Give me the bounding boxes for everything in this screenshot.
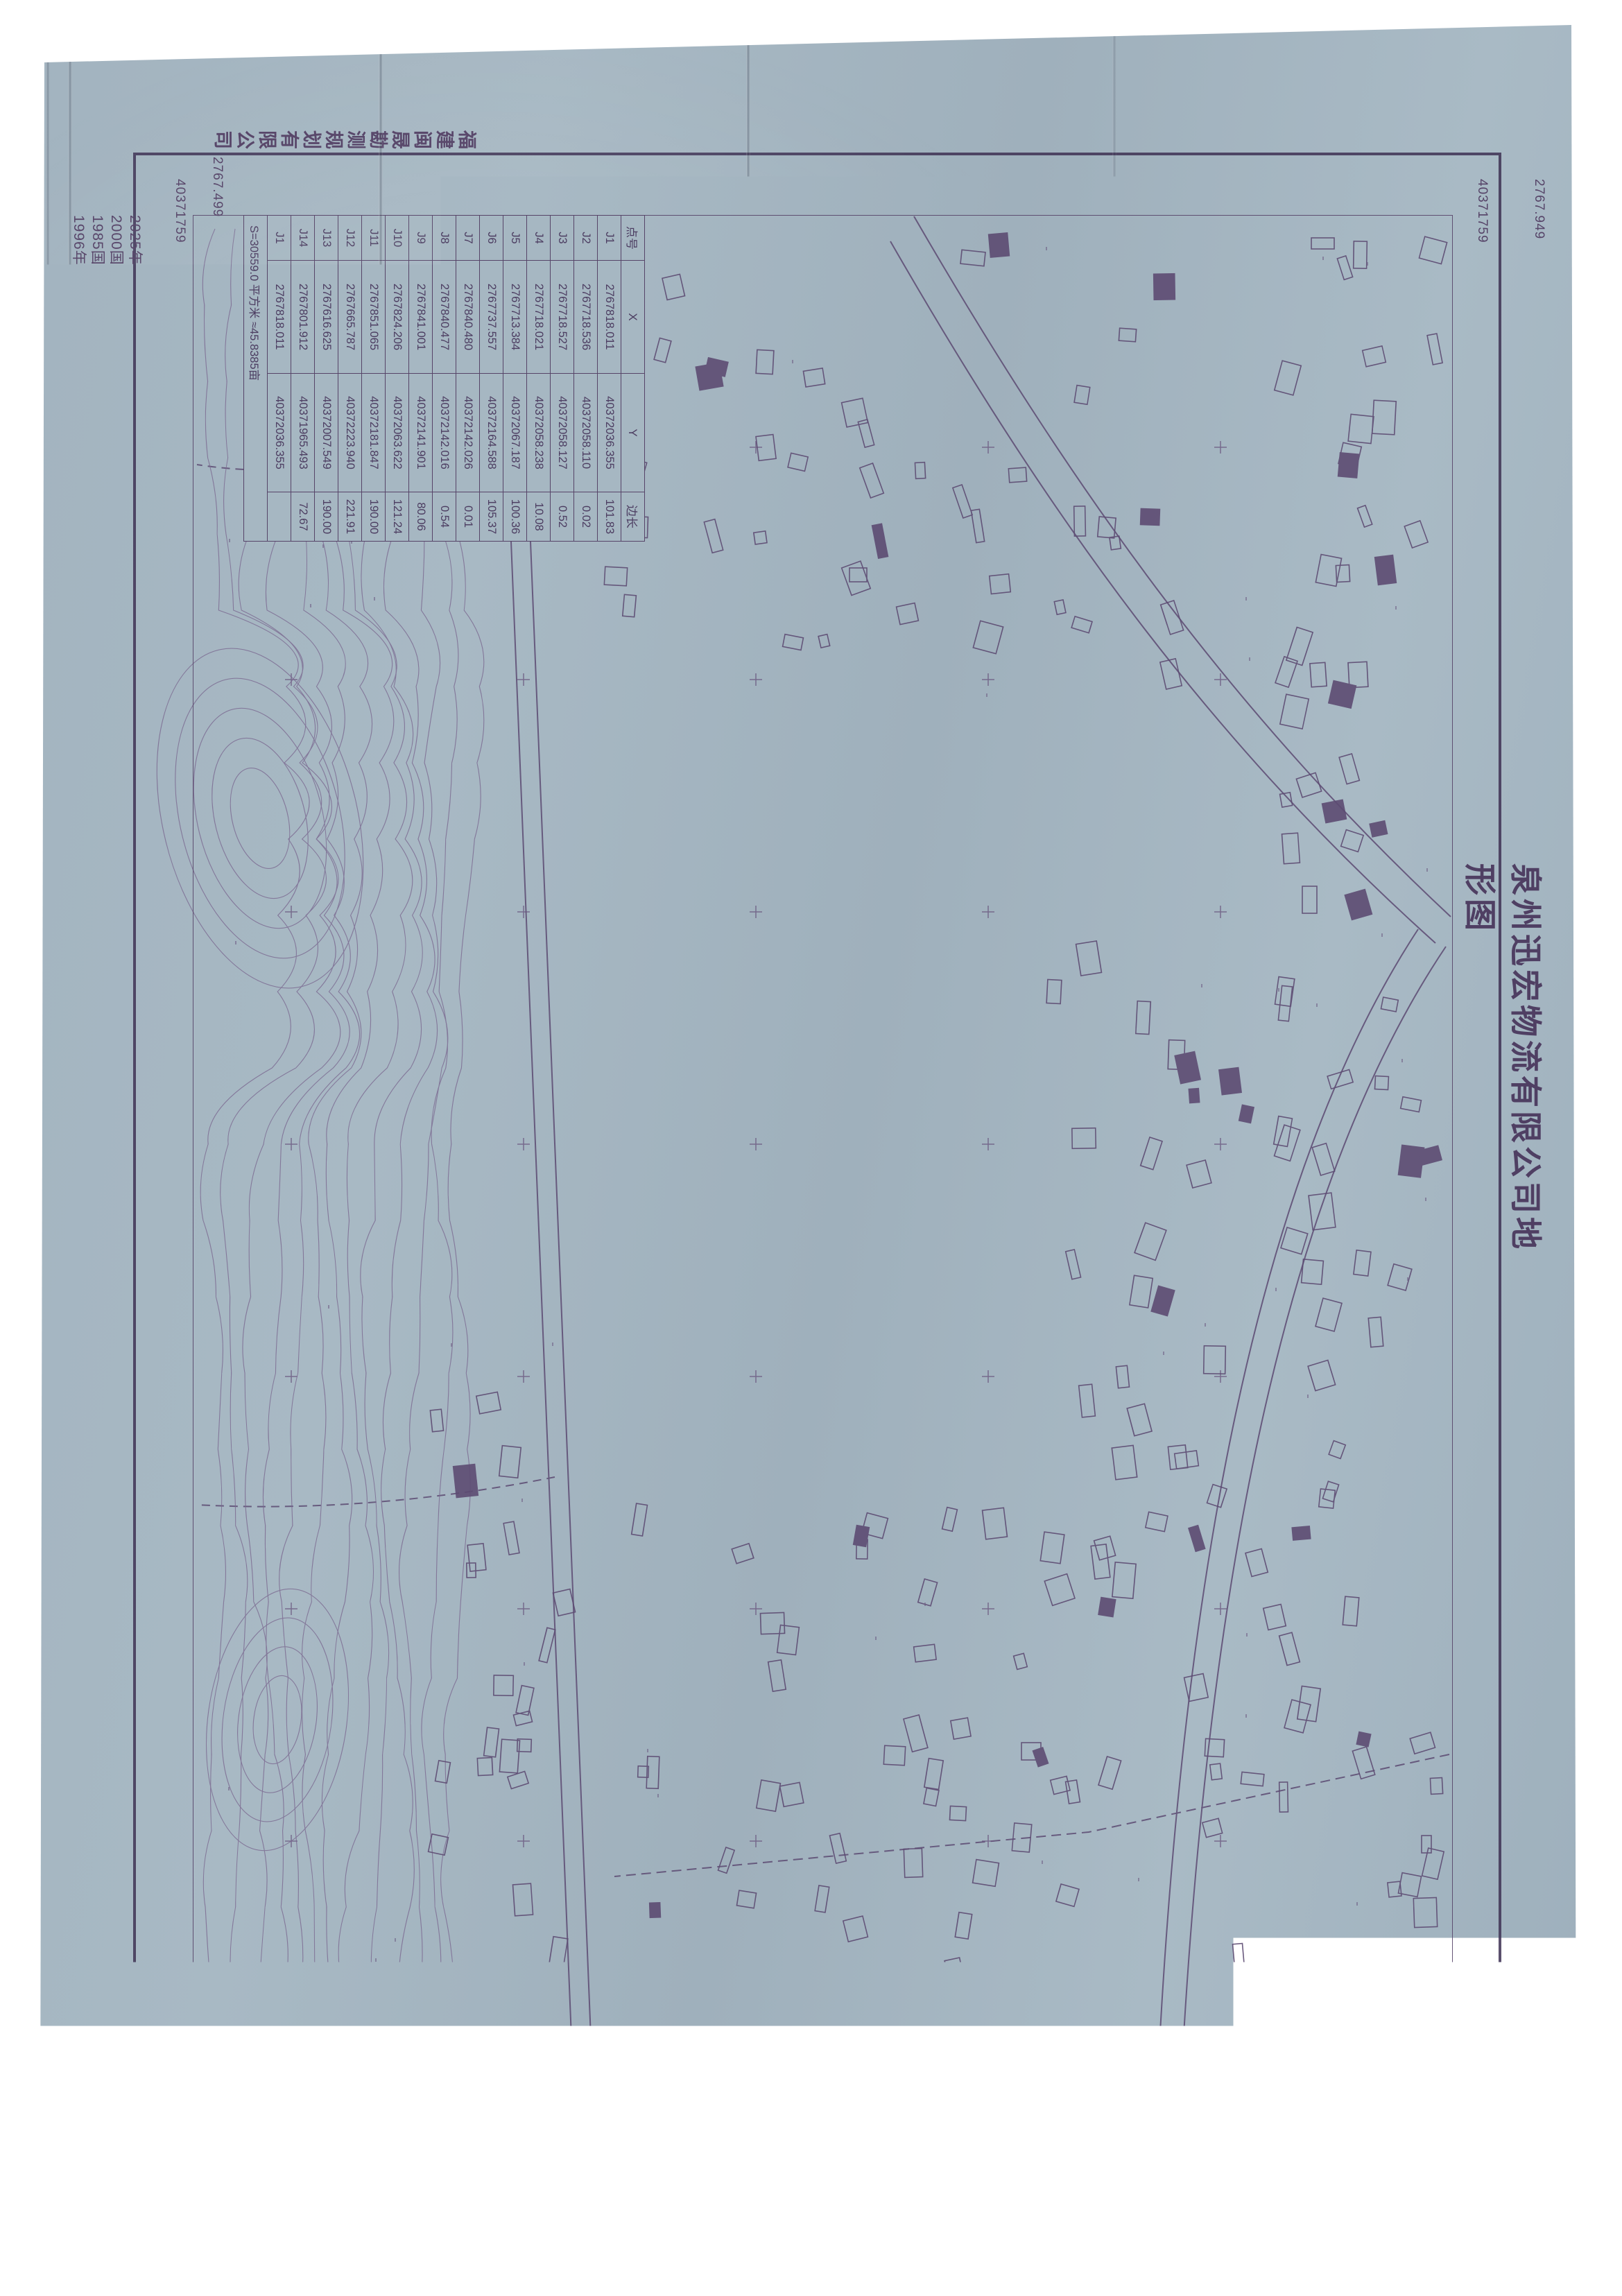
map-sheet-paper: 泉州迅宏物流有限公司地形图 福建闽晟勘测规划有限公司 2025年8月数字化制图，… [0, 0, 1622, 2295]
boundary-point-label: J4 [673, 900, 686, 913]
table-cell: 40372164.588 [480, 374, 503, 492]
table-cell: 40372067.187 [503, 374, 527, 492]
table-cell: 40372007.549 [315, 374, 338, 492]
table-row: J82767840.47740372142.0160.54 [433, 216, 456, 542]
topographic-map-rotated-content: 泉州迅宏物流有限公司地形图 福建闽晟勘测规划有限公司 2025年8月数字化制图，… [42, 21, 1574, 2153]
note-line: 2000国家大地坐标系，中央子午线120度。 [107, 215, 126, 506]
table-row: J112767851.06540372181.847190.00 [362, 216, 386, 542]
table-cell: J13 [315, 216, 338, 261]
table-row: J142767801.91240371965.49372.67 [291, 216, 315, 542]
table-cell: 72.67 [291, 492, 315, 542]
table-cell: J10 [386, 216, 409, 261]
boundary-point-label: J10 [954, 890, 967, 909]
table-header-cell: Y [621, 374, 645, 492]
table-cell: 190.00 [315, 492, 338, 542]
table-cell: 105.37 [480, 492, 503, 542]
fold-crease [746, 21, 750, 2153]
fold-crease [1112, 21, 1116, 2153]
table-cell: J5 [503, 216, 527, 261]
table-cell: J9 [409, 216, 433, 261]
table-cell: J6 [480, 216, 503, 261]
table-cell: 2767801.912 [291, 261, 315, 374]
fold-crease [68, 21, 72, 2153]
corner-coordinate-bottom-northing: 2767.499 [209, 157, 225, 217]
table-row: J32767718.52740372058.1270.52 [551, 216, 574, 542]
table-row: J12767818.01140372036.355 [268, 216, 291, 542]
fold-crease [46, 21, 50, 2153]
table-cell: J2 [574, 216, 598, 261]
table-cell: J12 [338, 216, 362, 261]
table-cell: J14 [291, 216, 315, 261]
table-cell: 0.54 [433, 492, 456, 542]
table-cell: 0.02 [574, 492, 598, 542]
corner-coordinate-top-northing: 2767.949 [1531, 179, 1546, 239]
table-cell: 121.24 [386, 492, 409, 542]
table-row: J92767841.00140372141.90180.06 [409, 216, 433, 542]
table-cell: 40372036.355 [268, 374, 291, 492]
table-cell: 10.08 [527, 492, 551, 542]
table-cell: 40372058.110 [574, 374, 598, 492]
map-scale: 1:1500 [39, 473, 60, 543]
table-cell: J1 [598, 216, 621, 261]
table-cell: 2767818.011 [598, 261, 621, 374]
table-row: J72767840.48040372142.0260.01 [456, 216, 480, 542]
table-cell: 80.06 [409, 492, 433, 542]
table-row: J42767718.02140372058.23810.08 [527, 216, 551, 542]
paper-wrinkle [366, 1664, 716, 1795]
table-row: J132767616.62540372007.549190.00 [315, 216, 338, 542]
table-row: J122767665.78740372223.940221.91 [338, 216, 362, 542]
table-header-cell: 边长 [621, 492, 645, 542]
boundary-coordinate-table: 点号XY边长J12767818.01140372036.355101.83J22… [243, 215, 645, 542]
table-cell: J1 [268, 216, 291, 261]
table-row: J22767718.53640372058.1100.02 [574, 216, 598, 542]
map-outer-border [133, 153, 1501, 2127]
table-cell: 40372181.847 [362, 374, 386, 492]
fold-crease [379, 21, 383, 2153]
stamp-star-icon [164, 619, 193, 650]
red-seal-stamp: 福建闽晟勘测规划有限公司 [42, 21, 1574, 2153]
scanned-document: 泉州迅宏物流有限公司地形图 福建闽晟勘测规划有限公司 2025年8月数字化制图，… [0, 0, 1622, 2295]
table-cell: 40372063.622 [386, 374, 409, 492]
table-cell: 40372142.016 [433, 374, 456, 492]
qr-code [1288, 2202, 1352, 2266]
table-cell: 40372223.940 [338, 374, 362, 492]
table-cell: 2767840.480 [456, 261, 480, 374]
boundary-point-label: J8 [990, 1074, 1003, 1087]
corner-coordinate-bottom-easting: 40371759 [172, 179, 187, 243]
table-header-cell: 点号 [621, 216, 645, 261]
table-cell: 2767718.536 [574, 261, 598, 374]
boundary-point-label: J11 [1015, 1206, 1028, 1225]
table-cell: 40372142.026 [456, 374, 480, 492]
paper-wrinkle [924, 372, 1198, 507]
table-cell: 2767824.206 [386, 261, 409, 374]
table-cell: 40371965.493 [291, 374, 315, 492]
boundary-point-label: J6 [729, 1164, 742, 1177]
camscanner-logo-text: CS [1372, 2215, 1406, 2242]
table-cell: 40372058.238 [527, 374, 551, 492]
boundary-point-label: J3 [686, 882, 699, 895]
boundary-point-label: J14 [901, 663, 914, 683]
road-number-label: (X308) [537, 358, 555, 400]
table-cell: 101.83 [598, 492, 621, 542]
table-row: J52767713.38440372067.187100.36 [503, 216, 527, 542]
table-cell: 100.36 [503, 492, 527, 542]
map-inner-frame [193, 215, 1453, 2075]
corner-coordinate-top-easting: 40371759 [1474, 179, 1490, 243]
table-header-row: 点号XY边长 [621, 216, 645, 542]
stamp-ring-text: 福建闽晟勘测规划有限公司 [143, 582, 223, 687]
explanation-box: 说明：红线系泉州迅宏物流有限公司规划报批用地界线。 [127, 546, 254, 684]
svg-text:福建闽晟勘测规划有限公司: 福建闽晟勘测规划有限公司 [143, 582, 223, 687]
boundary-point-label: J5 [671, 938, 684, 951]
surveyor-company-name: 福建闽晟勘测规划有限公司 [211, 125, 477, 152]
table-cell: 0.01 [456, 492, 480, 542]
fold-crease [40, 391, 1574, 395]
table-cell: J11 [362, 216, 386, 261]
table-cell: 2767737.557 [480, 261, 503, 374]
paper-wrinkle [1179, 2028, 1442, 2080]
table-cell: 2767851.065 [362, 261, 386, 374]
table-cell: J7 [456, 216, 480, 261]
table-row: J62767737.55740372164.588105.37 [480, 216, 503, 542]
red-boundary-layer: J1J2J3J4J5J6J7J8J9J10J11J12J13J14 [42, 21, 1574, 2153]
table-cell: J3 [551, 216, 574, 261]
table-cell: 40372036.355 [598, 374, 621, 492]
map-title: 泉州迅宏物流有限公司地形图 [1459, 863, 1551, 1279]
table-cell: 2767841.001 [409, 261, 433, 374]
table-cell: 2767713.384 [503, 261, 527, 374]
area-cell: S=30559.0 平方米 ≈45.8385亩 [244, 216, 268, 542]
map-notes: 2025年8月数字化制图， 2000国家大地坐标系，中央子午线120度。 198… [69, 215, 144, 506]
table-area-row: S=30559.0 平方米 ≈45.8385亩 [244, 216, 268, 542]
boundary-point-label: J2 [686, 917, 699, 930]
boundary-point-label: J1 [940, 865, 953, 878]
explanation-text: 说明：红线系泉州迅宏物流有限公司规划报批用地界线。 [173, 554, 245, 671]
table-cell: 2767840.477 [433, 261, 456, 374]
table-cell: 2767818.011 [268, 261, 291, 374]
fold-crease [40, 1913, 1574, 1917]
camscanner-logo-icon: CS [1366, 2205, 1412, 2251]
boundary-point-label: J12 [564, 1304, 577, 1323]
table-cell: 2767665.787 [338, 261, 362, 374]
fold-crease [40, 905, 1574, 909]
table-cell: 2767718.021 [527, 261, 551, 374]
table-cell [268, 492, 291, 542]
boundary-point-label: J13 [445, 782, 458, 801]
table-cell: 2767718.527 [551, 261, 574, 374]
note-line: 2025年8月数字化制图， [126, 215, 144, 506]
camscanner-tagline: 3亿人都在用的扫描App [1424, 2249, 1622, 2296]
table-row: J102767824.20640372063.622121.24 [386, 216, 409, 542]
note-line: 1996年版图式。 [69, 215, 88, 506]
table-cell: 221.91 [338, 492, 362, 542]
table-row: J12767818.01140372036.355101.83 [598, 216, 621, 542]
table-cell: J4 [527, 216, 551, 261]
table-cell: 0.52 [551, 492, 574, 542]
map-linework-layer [42, 21, 1574, 2153]
camscanner-app-name: 扫描全能王 [1422, 2194, 1619, 2249]
table-cell: J8 [433, 216, 456, 261]
parcel-area-annotation: S=30559.0 平方米 ≈45.8385亩 [722, 836, 752, 1150]
table-cell: 190.00 [362, 492, 386, 542]
table-cell: 2767616.625 [315, 261, 338, 374]
table-header-cell: X [621, 261, 645, 374]
boundary-point-label: J7 [990, 1113, 1003, 1126]
fold-crease [40, 1415, 1574, 1419]
table-cell: 40372141.901 [409, 374, 433, 492]
table-cell: 40372058.127 [551, 374, 574, 492]
note-line: 1985国家高程基准，等高距为1.0米。 [88, 215, 107, 506]
boundary-point-label: J9 [997, 1109, 1010, 1122]
